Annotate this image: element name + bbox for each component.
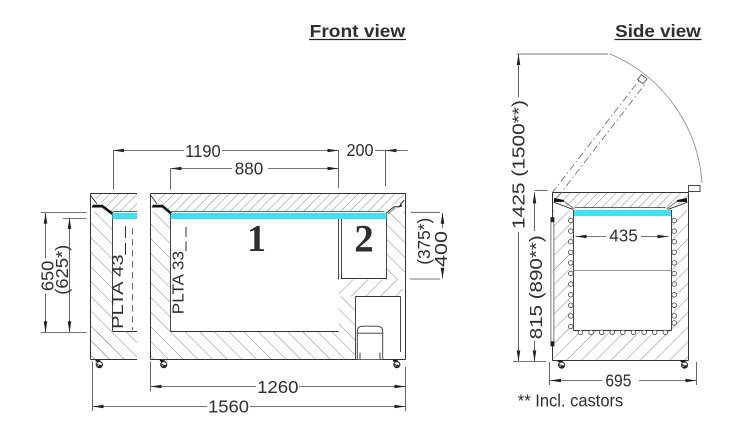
- svg-text:880: 880: [235, 159, 264, 179]
- svg-text:Front view: Front view: [310, 21, 406, 41]
- svg-text:(625*): (625*): [52, 245, 72, 295]
- svg-text:Side view: Side view: [615, 21, 701, 41]
- svg-text:PLTA 43_ _: PLTA 43_ _: [110, 225, 127, 329]
- svg-text:435: 435: [609, 226, 638, 246]
- svg-text:PLTA 33_ _: PLTA 33_ _: [170, 226, 187, 314]
- svg-text:815 (890**): 815 (890**): [526, 235, 546, 339]
- svg-text:1190: 1190: [185, 141, 221, 161]
- svg-text:200: 200: [347, 140, 374, 160]
- svg-text:2: 2: [354, 218, 374, 261]
- svg-text:1560: 1560: [208, 397, 249, 417]
- svg-text:400: 400: [431, 231, 451, 267]
- svg-text:1425 (1500**): 1425 (1500**): [509, 100, 529, 229]
- svg-text:1: 1: [247, 218, 266, 260]
- svg-text:** Incl. castors: ** Incl. castors: [518, 391, 624, 411]
- svg-text:695: 695: [605, 370, 631, 390]
- svg-text:1260: 1260: [257, 377, 299, 397]
